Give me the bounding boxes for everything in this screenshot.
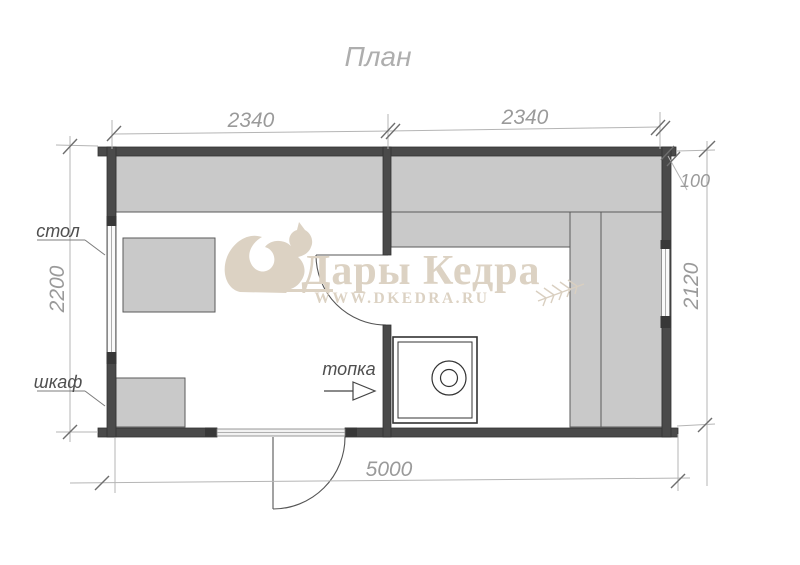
floor-plan-drawing: Дары Кедра WWW.DKEDRA.RU [0,0,800,565]
stove [393,337,477,423]
wall-bottom-right-segment [345,428,678,437]
dim-total-width: 5000 [366,458,413,481]
table-label-leader [85,240,105,255]
left-window-cap-bottom [107,352,117,364]
cabinet [116,378,185,427]
firebox-label: топка [322,359,375,379]
dim-top-left: 2340 [227,109,275,132]
page-title: План [344,41,411,72]
door-jamb-right [345,428,357,438]
watermark-brand: Дары Кедра [301,248,540,294]
dim-wall-thickness: 100 [680,171,710,191]
table-label: стол [36,221,80,241]
watermark-site: WWW.DKEDRA.RU [315,290,490,307]
squirrel-icon [225,222,313,293]
wall-partition-lower [383,325,391,437]
door-jamb-left [205,428,217,438]
dim-top-right: 2340 [501,106,549,129]
wall-partition-upper [383,147,391,255]
right-room-vertical-bench-2 [601,212,662,427]
right-window-cap-top [661,240,671,249]
cabinet-label: шкаф [34,372,83,392]
arrow-head-icon [353,382,375,400]
floor-plan-page: Дары Кедра WWW.DKEDRA.RU [0,0,800,565]
right-room-vertical-bench-1 [570,212,601,427]
firebox-arrow [324,382,375,400]
dim-right-depth: 2120 [680,262,703,310]
dim-left-depth: 2200 [46,265,69,313]
entrance-opening [205,428,357,438]
right-window-cap-bottom [661,316,671,328]
table [123,238,215,312]
left-window-cap-top [107,216,117,226]
cabinet-label-leader [85,391,105,406]
entrance-door-swing-arc [273,437,345,509]
